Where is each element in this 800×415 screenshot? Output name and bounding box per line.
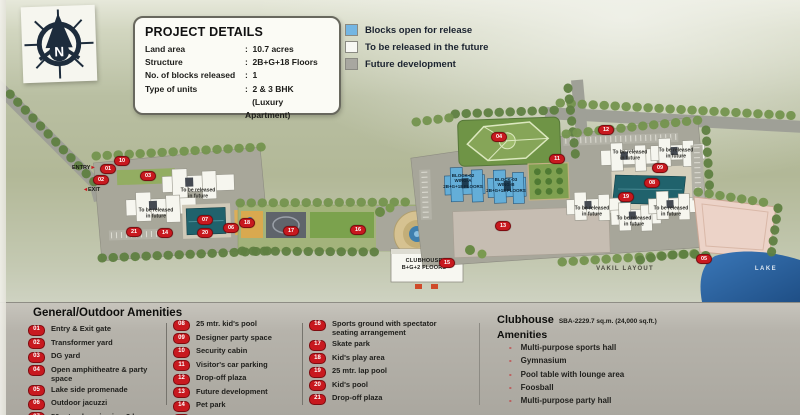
amenity-number-badge: 19 (309, 367, 326, 378)
project-details-title: PROJECT DETAILS (145, 25, 329, 39)
compass-north-letter: N (54, 44, 64, 59)
masterplan-brochure: ENTRY ▸ ◂ EXIT CLUBHOUSE B+G+2 FLOORS VA… (0, 0, 800, 415)
amenity-item: 11Visitor's car parking (173, 360, 297, 372)
amenities-title: General/Outdoor Amenities (33, 307, 182, 319)
detail-label: Structure (145, 56, 245, 69)
amenity-item: 12Drop-off plaza (173, 373, 297, 385)
amenity-number-badge: 03 (28, 352, 45, 363)
amenity-label: Visitor's car parking (196, 360, 268, 369)
amenities-column-1: 01Entry & Exit gate02Transformer yard03D… (28, 324, 164, 415)
amenity-label: Outdoor jacuzzi (51, 398, 107, 407)
amenities-column-2: 0825 mtr. kid's pool09Designer party spa… (173, 319, 297, 415)
clubhouse-amenity-item: -Foosball (497, 384, 789, 393)
clubhouse-amenity-item: -Multi-purpose sports hall (497, 344, 789, 353)
amenity-label: Security cabin (196, 346, 247, 355)
amenity-number-badge: 20 (309, 380, 326, 391)
amenity-number-badge: 04 (28, 365, 45, 376)
project-detail-row: Land area: 10.7 acres (145, 43, 329, 56)
amenity-number-badge: 08 (173, 320, 190, 331)
amenity-item: 1925 mtr. lap pool (309, 366, 454, 378)
project-detail-row: No. of blocks released: 1 (145, 69, 329, 82)
amenity-item: 20Kid's pool (309, 380, 454, 392)
tree-row (10, 94, 96, 184)
amenity-item: 21Drop-off plaza (309, 393, 454, 405)
amenity-item: 16Sports ground with spectator seating a… (309, 319, 454, 337)
amenity-item: 03DG yard (28, 351, 164, 363)
amenity-number-badge: 16 (309, 320, 326, 331)
tree-row (455, 110, 560, 114)
clubhouse-amenity-item: -Multi-purpose party hall (497, 397, 789, 406)
legend-label: To be released in the future (365, 42, 488, 53)
clubhouse-amenity-label: Foosball (521, 384, 554, 393)
amenity-item: 14Pet park (173, 400, 297, 412)
amenity-label: Drop-off plaza (196, 373, 246, 382)
lake (701, 251, 800, 302)
compass-icon: N (21, 5, 98, 84)
amenity-number-badge: 06 (28, 399, 45, 410)
bullet-dash: - (509, 371, 512, 380)
amenity-number-badge: 21 (309, 394, 326, 405)
scan-edge (0, 0, 6, 415)
amenity-number-badge: 10 (173, 347, 190, 358)
amenity-label: Drop-off plaza (332, 393, 382, 402)
tree-court (528, 163, 569, 200)
amenity-label: Designer party space (196, 333, 272, 342)
amenity-item: 10Security cabin (173, 346, 297, 358)
tree (375, 207, 385, 217)
amenity-label: Kid's pool (332, 380, 368, 389)
amenity-item: 09Designer party space (173, 333, 297, 345)
amenity-label: 25 mtr. kid's pool (196, 319, 257, 328)
legend-item: Future development (345, 58, 488, 70)
tree-row (640, 254, 712, 260)
amenities-column-3: 16Sports ground with spectator seating a… (309, 319, 454, 405)
legend-swatch (345, 24, 358, 36)
amenity-number-badge: 17 (309, 340, 326, 351)
amenity-number-badge: 05 (28, 385, 45, 396)
detail-value: : 2 & 3 BHK (Luxury Apartment) (245, 83, 329, 123)
master-plan-map: ENTRY ▸ ◂ EXIT CLUBHOUSE B+G+2 FLOORS VA… (0, 0, 800, 302)
clubhouse-title: Clubhouse (497, 314, 554, 326)
amenity-label: Lake side promenade (51, 385, 128, 394)
legend-label: Future development (365, 59, 456, 70)
bullet-dash: - (509, 384, 512, 393)
amenity-label: Kid's play area (332, 353, 385, 362)
project-detail-row: Structure: 2B+G+18 Floors (145, 56, 329, 69)
amenity-item: 02Transformer yard (28, 338, 164, 350)
amenity-item: 01Entry & Exit gate (28, 324, 164, 336)
clubhouse-amenity-item: -Gymnasium (497, 357, 789, 366)
clubhouse-area-text: SBA-2229.7 sq.m. (24,000 sq.ft.) (559, 318, 657, 325)
detail-label: Land area (145, 43, 245, 56)
legend-label: Blocks open for release (365, 25, 472, 36)
compass-card: N (21, 5, 98, 84)
amenity-item: 04Open amphitheatre & party space (28, 365, 164, 383)
amenity-number-badge: 18 (309, 353, 326, 364)
bullet-dash: - (509, 357, 512, 366)
clubhouse-amenity-item: -Pool table with lounge area (497, 371, 789, 380)
central-residential-complex (410, 112, 711, 267)
legend-item: Blocks open for release (345, 24, 488, 36)
clubhouse-amenity-label: Gymnasium (521, 357, 567, 366)
amenity-item: 0825 mtr. kid's pool (173, 319, 297, 331)
amenity-number-badge: 09 (173, 333, 190, 344)
bullet-dash: - (509, 397, 512, 406)
column-divider (302, 323, 303, 405)
amenity-item: 06Outdoor jacuzzi (28, 398, 164, 410)
amenity-number-badge: 11 (173, 360, 190, 371)
detail-label: No. of blocks released (145, 69, 245, 82)
clubhouse-amenity-label: Pool table with lounge area (521, 371, 625, 380)
amenity-item: 0750 mtr. olympic size, 3 lane swimming … (28, 412, 164, 415)
amenity-label: Pet park (196, 400, 226, 409)
amenity-label: 25 mtr. lap pool (332, 366, 387, 375)
sports-ground (310, 212, 374, 238)
clubhouse-section: Clubhouse SBA-2229.7 sq.m. (24,000 sq.ft… (497, 314, 789, 410)
column-divider (166, 323, 167, 405)
amenity-item: 05Lake side promenade (28, 385, 164, 397)
amenity-label: Sports ground with spectator seating arr… (332, 319, 454, 337)
legend-item: To be released in the future (345, 41, 488, 53)
clubhouse-amenity-label: Multi-purpose sports hall (521, 344, 617, 353)
amenity-number-badge: 14 (173, 401, 190, 412)
map-legend: Blocks open for releaseTo be released in… (345, 24, 488, 75)
amenity-number-badge: 02 (28, 338, 45, 349)
amenity-label: Future development (196, 387, 268, 396)
amenity-label: Skate park (332, 339, 370, 348)
legend-swatch (345, 58, 358, 70)
skate-park (266, 212, 306, 238)
amenity-label: Open amphitheatre & party space (51, 365, 164, 383)
project-details-card: PROJECT DETAILS Land area: 10.7 acresStr… (133, 16, 341, 115)
project-detail-row: Type of units: 2 & 3 BHK (Luxury Apartme… (145, 83, 329, 123)
amenity-label: Transformer yard (51, 338, 113, 347)
amenities-panel: General/Outdoor Amenities 01Entry & Exit… (0, 302, 800, 415)
legend-swatch (345, 41, 358, 53)
detail-value: : 1 (245, 69, 257, 82)
amenity-item: 18Kid's play area (309, 353, 454, 365)
tree-row (240, 202, 414, 203)
amenity-label: DG yard (51, 351, 80, 360)
column-divider (479, 323, 480, 405)
tree-row (416, 117, 456, 122)
amenity-number-badge: 13 (173, 387, 190, 398)
kids-play-area-2 (241, 211, 263, 238)
detail-value: : 2B+G+18 Floors (245, 56, 318, 69)
amenity-label: Entry & Exit gate (51, 324, 111, 333)
amenity-item: 17Skate park (309, 339, 454, 351)
tree-row (706, 130, 710, 194)
clubhouse-amenity-label: Multi-purpose party hall (521, 397, 612, 406)
amenity-number-badge: 12 (173, 374, 190, 385)
amenity-item: 13Future development (173, 387, 297, 399)
clubhouse-amenities-heading: Amenities (497, 329, 789, 341)
amenity-number-badge: 01 (28, 325, 45, 336)
detail-label: Type of units (145, 83, 245, 123)
amenity-label: 50 mtr. olympic size, 3 lane swimming po… (51, 412, 164, 415)
bullet-dash: - (509, 344, 512, 353)
detail-value: : 10.7 acres (245, 43, 294, 56)
